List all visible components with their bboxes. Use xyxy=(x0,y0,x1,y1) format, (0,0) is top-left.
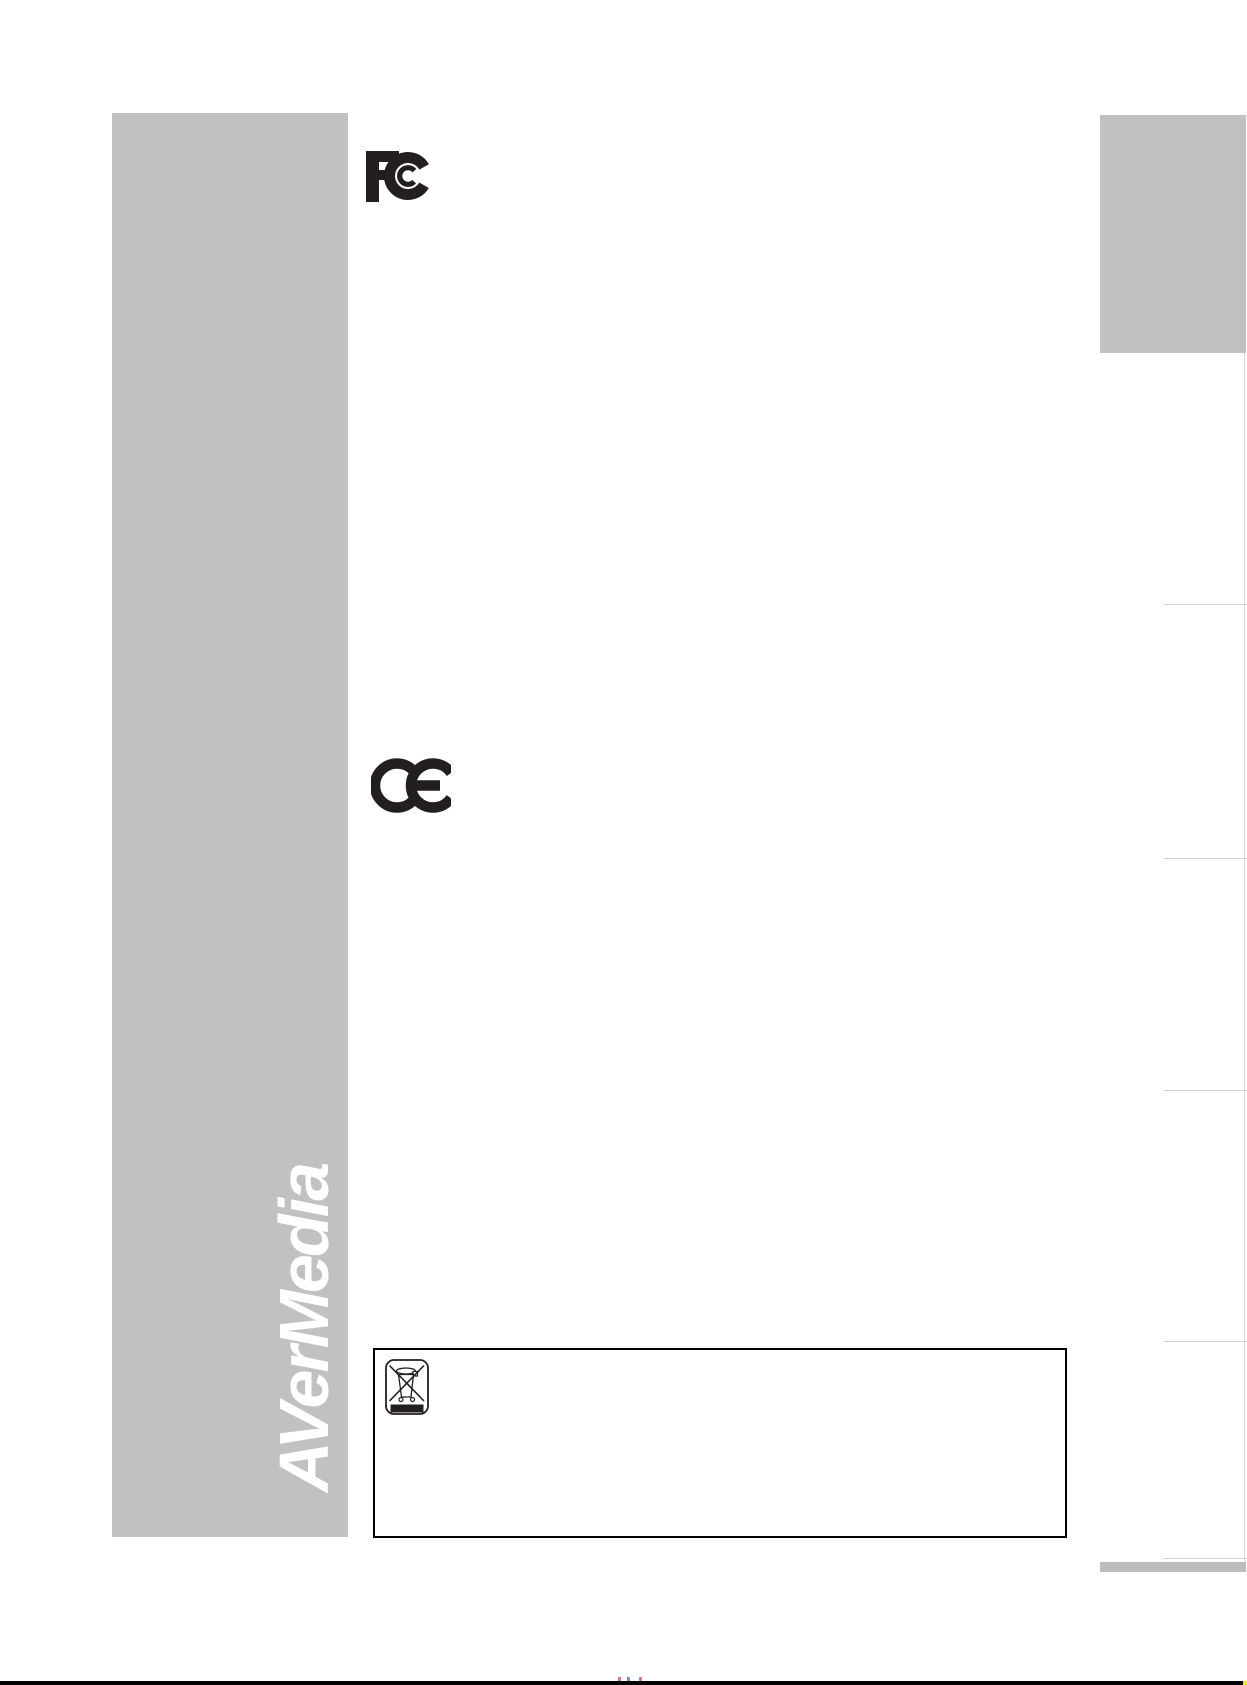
fcc-logo-icon xyxy=(364,147,433,203)
footer-corner-artifact xyxy=(1243,1681,1247,1685)
weee-notice-box xyxy=(373,1348,1067,1538)
right-rail-divider xyxy=(1163,1090,1247,1091)
right-chapter-tab xyxy=(1100,115,1246,353)
ce-logo-icon xyxy=(371,756,451,815)
right-rail-divider xyxy=(1163,604,1247,605)
footer-rule xyxy=(0,1681,1247,1685)
manual-page: AVerMedia xyxy=(0,0,1247,1685)
right-rail-bottom-bar xyxy=(1100,1562,1246,1572)
right-rail-divider xyxy=(1163,858,1247,859)
right-rail-vertical-line xyxy=(1244,353,1245,1562)
right-rail-divider xyxy=(1163,1558,1247,1559)
avermedia-logo: AVerMedia xyxy=(268,1120,340,1492)
weee-bin-icon xyxy=(385,1359,430,1415)
right-rail-divider xyxy=(1163,1341,1247,1342)
